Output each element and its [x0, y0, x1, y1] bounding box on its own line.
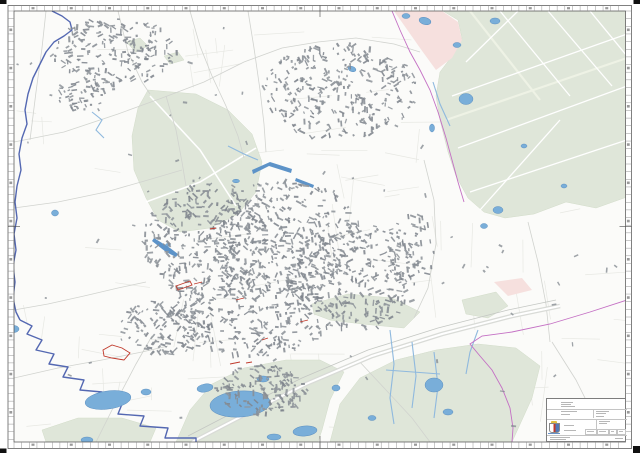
titleblock-text-line	[599, 421, 610, 422]
titleblock-text-line	[550, 437, 570, 438]
map-sheet-page	[0, 0, 640, 453]
titleblock-text-line	[550, 439, 566, 440]
titleblock-text-line	[596, 416, 604, 417]
titleblock-text-line	[561, 414, 570, 415]
titleblock-divider	[547, 419, 627, 420]
titleblock-text-line	[561, 404, 571, 405]
titleblock-text-line	[561, 406, 575, 407]
titleblock-cell-value	[611, 431, 614, 432]
titleblock-divider	[547, 435, 627, 436]
coat-of-arms-caption	[548, 433, 560, 434]
titleblock-text-line	[561, 402, 573, 403]
titleblock-cell-value	[619, 431, 623, 432]
title-block	[546, 398, 626, 442]
titleblock-text-line	[599, 423, 607, 424]
titleblock-divider	[593, 409, 594, 419]
municipal-coat-of-arms	[549, 423, 560, 433]
titleblock-text-line	[561, 411, 577, 412]
titleblock-text-line	[615, 438, 623, 439]
titleblock-cell-value	[599, 431, 606, 432]
titleblock-text-line	[564, 430, 576, 431]
titleblock-cell-value	[587, 431, 594, 432]
map-canvas	[0, 0, 640, 453]
titleblock-text-line	[596, 413, 606, 414]
titleblock-text-line	[564, 425, 574, 426]
titleblock-text-line	[596, 411, 609, 412]
titleblock-divider	[547, 409, 627, 410]
map-content	[9, 11, 639, 453]
